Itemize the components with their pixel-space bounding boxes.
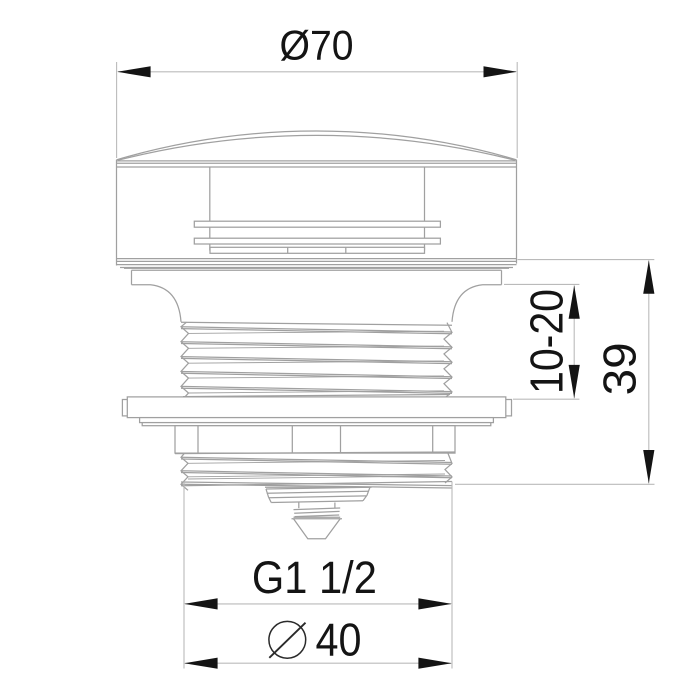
svg-text:Ø70: Ø70 (280, 22, 354, 69)
svg-text:G1 1/2: G1 1/2 (252, 552, 377, 603)
svg-text:39: 39 (594, 342, 646, 395)
svg-text:10-20: 10-20 (520, 289, 572, 394)
svg-text:40: 40 (316, 614, 362, 666)
